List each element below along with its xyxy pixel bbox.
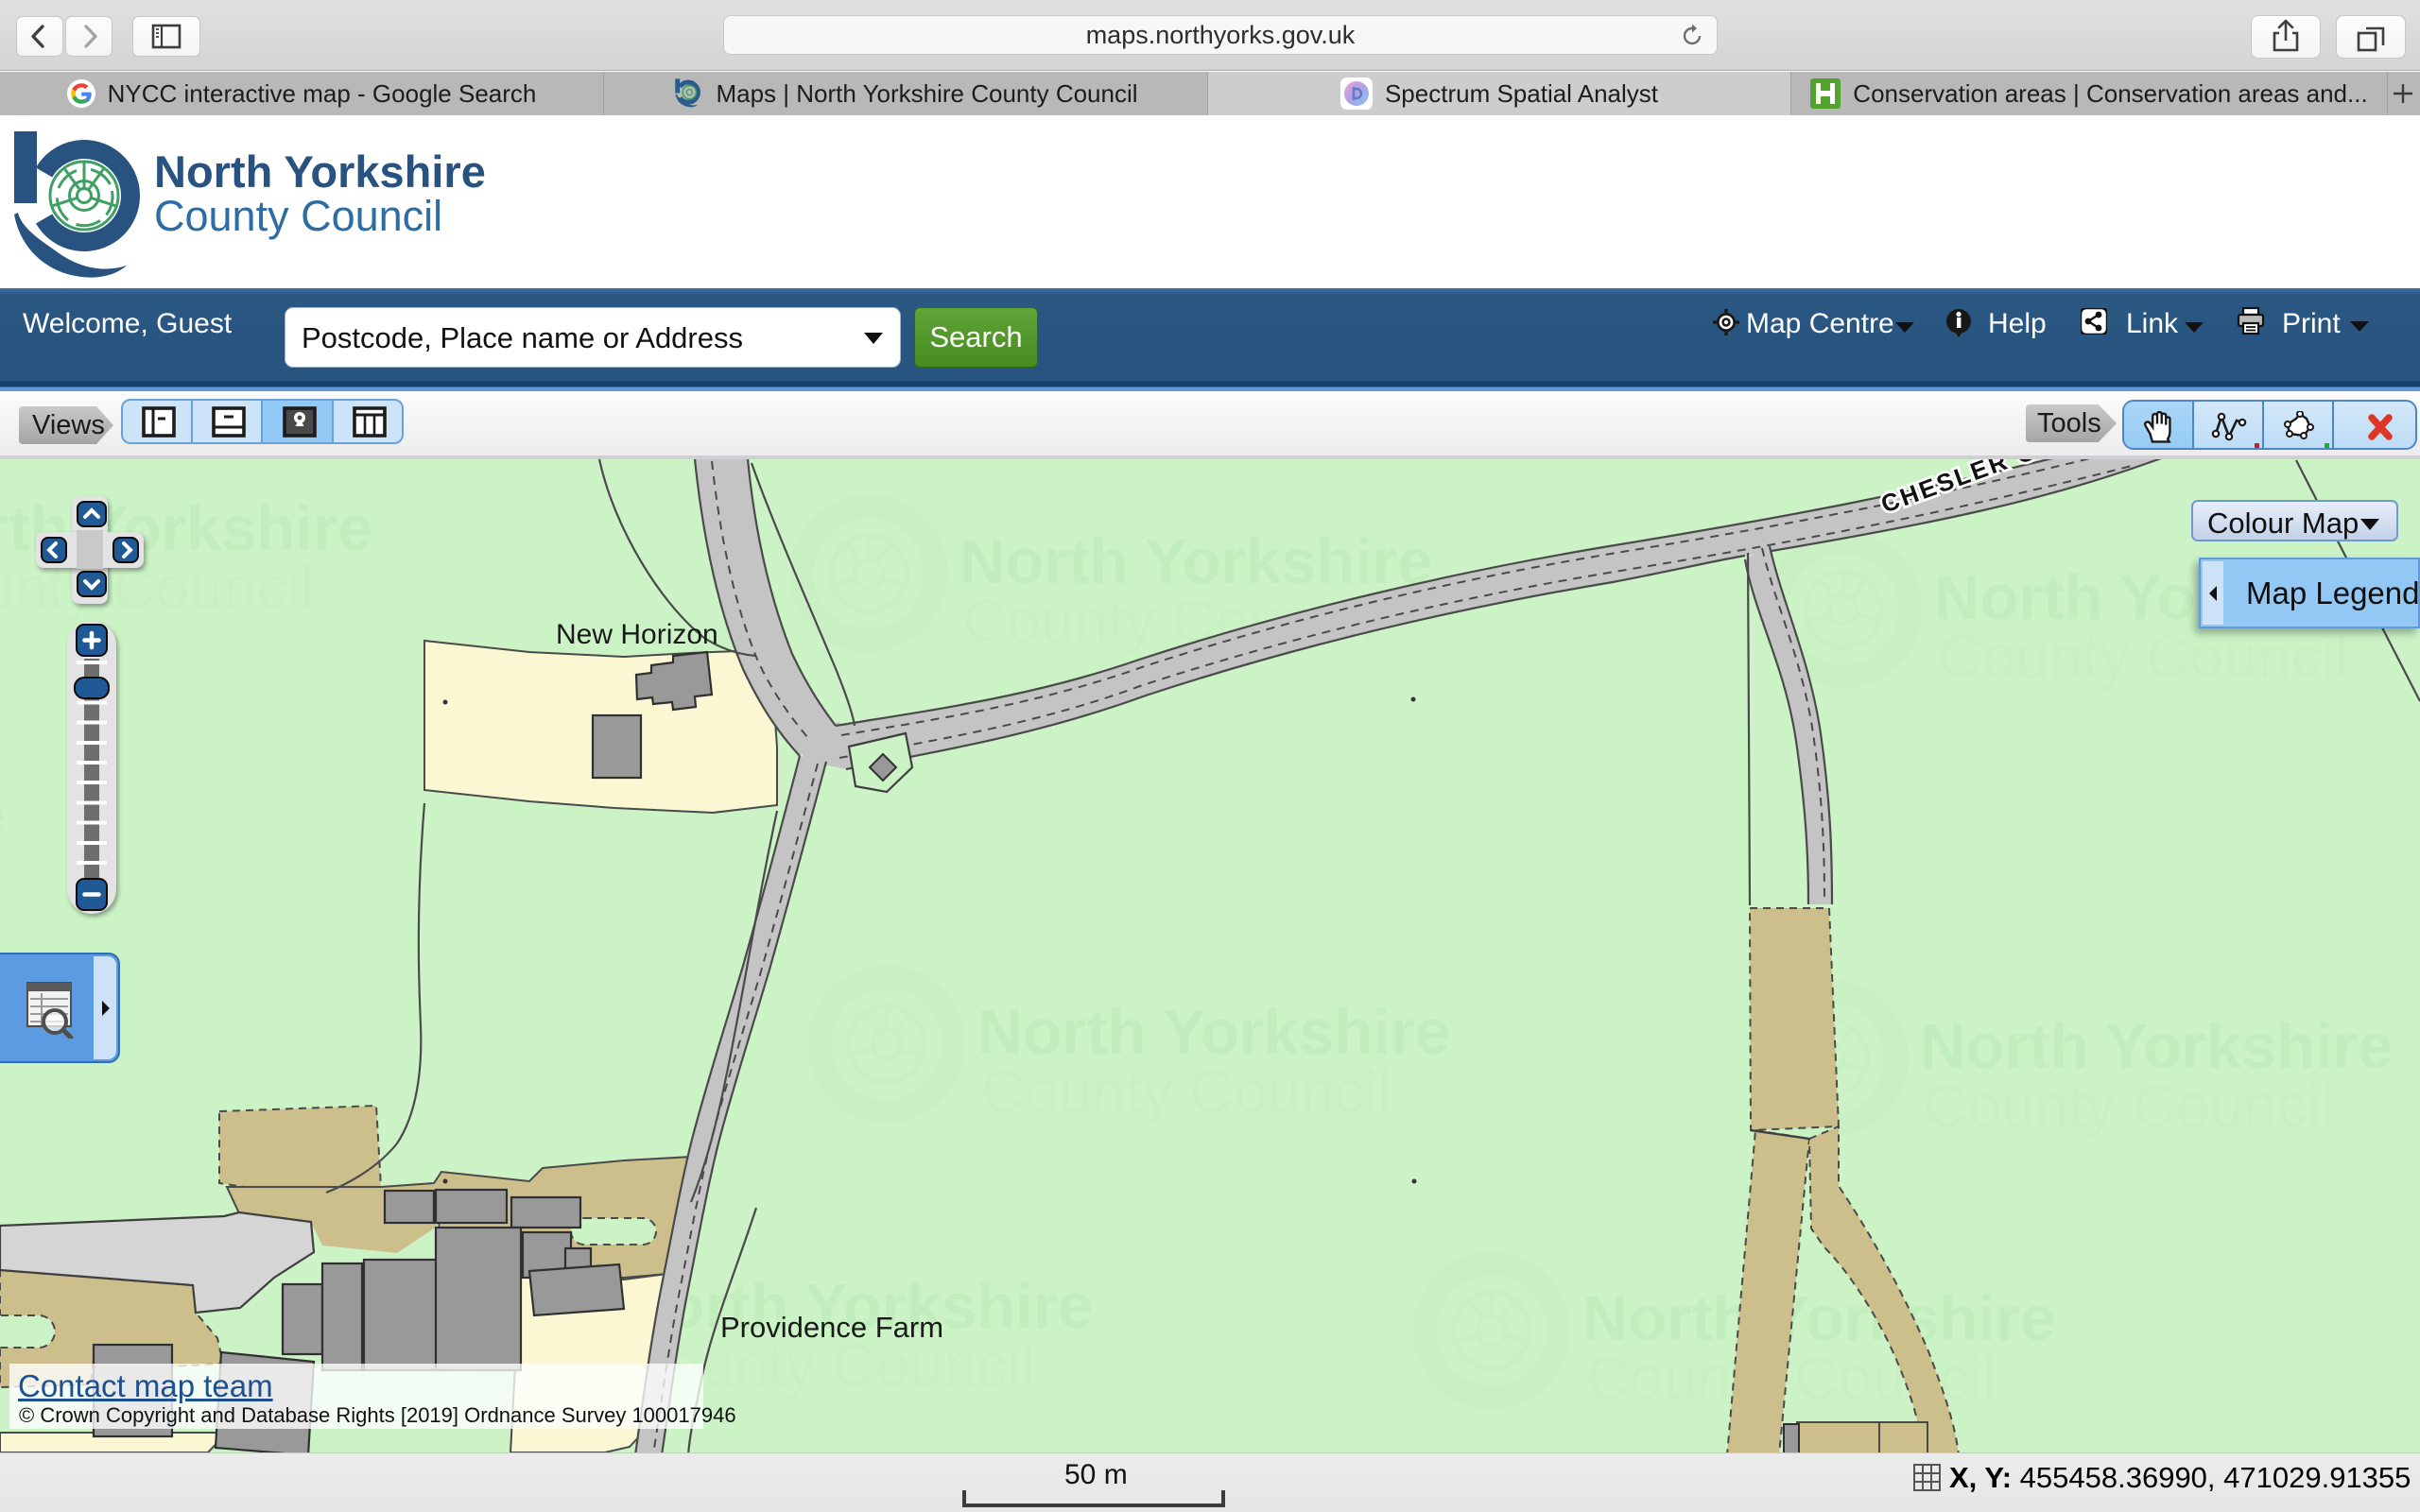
svg-text:New Horizon: New Horizon <box>556 619 718 650</box>
svg-text:Providence Farm: Providence Farm <box>720 1311 943 1344</box>
